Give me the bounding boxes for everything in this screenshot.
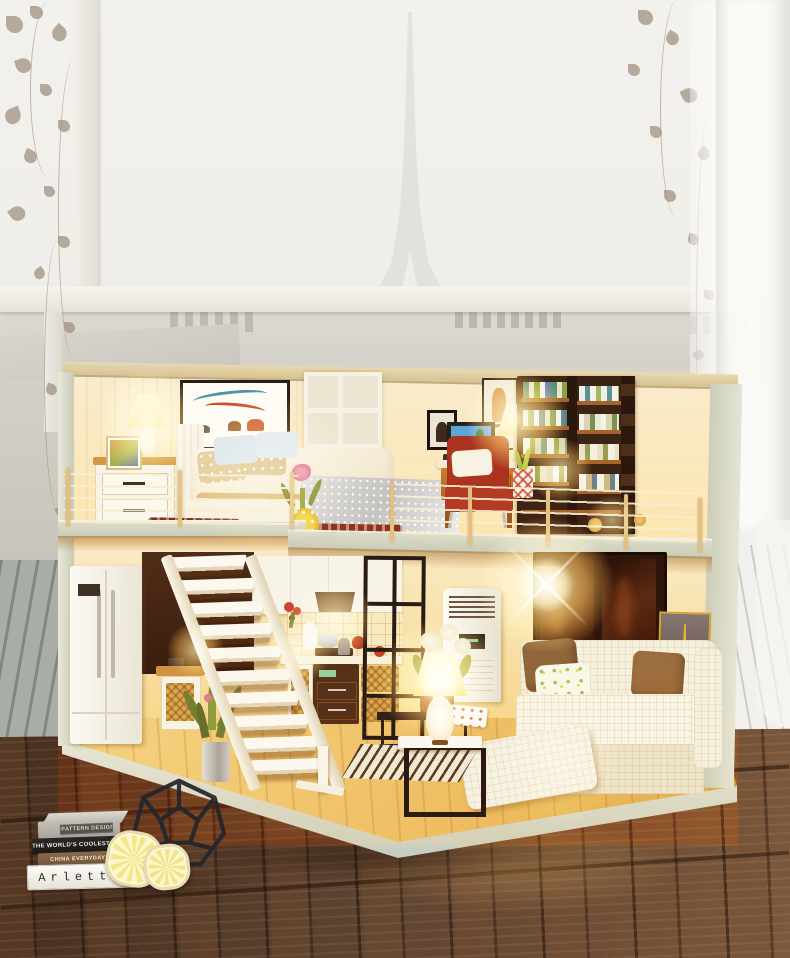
- railing-post: [290, 472, 294, 530]
- railing-post: [178, 470, 182, 527]
- fridge-bottom-seam: [72, 712, 140, 714]
- pillow-blue: [256, 431, 299, 458]
- book-row: [579, 386, 619, 401]
- partition-rail: [367, 602, 421, 606]
- drawer-handle: [328, 709, 346, 711]
- vase-leaf: [306, 478, 323, 506]
- sheer-curtain-strip: [756, 520, 790, 730]
- railing-post: [698, 498, 702, 552]
- vine-leaf: [64, 322, 75, 333]
- vine-leaf: [650, 126, 662, 138]
- shelf-bar: [577, 401, 621, 405]
- living-room-lamp: [406, 652, 474, 748]
- lamp-foot: [432, 740, 448, 745]
- shelf-bar: [521, 426, 569, 430]
- book-row: [523, 410, 567, 426]
- vine-leaf: [628, 64, 640, 76]
- cooking-pot: [318, 634, 338, 648]
- plant-pink-tip: [204, 694, 212, 702]
- glass-reflection: [616, 577, 632, 637]
- vine-leaf: [58, 120, 70, 132]
- vine-leaf: [664, 190, 676, 202]
- sofa-pillow-brown: [630, 650, 685, 700]
- railing-post: [546, 490, 550, 548]
- drawer-handle: [328, 689, 346, 691]
- stair-step: [246, 758, 328, 781]
- fridge: [70, 566, 142, 744]
- vine-leaf: [32, 266, 47, 281]
- book-row: [523, 382, 567, 398]
- shelf-bar: [521, 398, 569, 402]
- glass-reflection: [548, 583, 566, 635]
- artwork-red-line: [205, 400, 266, 417]
- fridge-handle: [97, 590, 101, 678]
- vine-leaf: [7, 203, 28, 224]
- fridge-handle: [111, 590, 115, 678]
- railing-post: [468, 486, 472, 546]
- book-row: [579, 474, 619, 490]
- book-title-label: PATTERN DESIGN: [60, 823, 113, 835]
- vine-leaf: [40, 84, 52, 96]
- vine-leaf: [6, 16, 23, 33]
- railing-post: [624, 494, 628, 550]
- shelf-bar: [577, 460, 621, 464]
- product-photo-dollhouse: PATTERN DESIGN THE WORLD'S COOLEST HOTEL…: [0, 0, 790, 958]
- oven-drawer: [317, 702, 357, 720]
- book-row: [579, 414, 619, 430]
- vine-leaf: [638, 10, 653, 25]
- oven-display: [319, 670, 336, 677]
- range-hood: [315, 592, 355, 612]
- oven-cabinet: [313, 664, 359, 724]
- vine-stem: [660, 0, 695, 220]
- lamp-shade: [122, 394, 172, 428]
- fridge-logo-panel: [78, 584, 100, 596]
- loft-floor-shadow: [58, 536, 306, 552]
- vine-leaf: [3, 106, 24, 127]
- book-row: [579, 444, 619, 460]
- glass-roof-left: [0, 560, 62, 745]
- island-item: [168, 658, 184, 666]
- island-top: [156, 666, 204, 676]
- red-flowers: [284, 602, 294, 612]
- side-table-frame: [404, 748, 486, 817]
- stand-mixer: [338, 638, 350, 655]
- shelf-bar: [577, 430, 621, 434]
- plant-pot-metal: [202, 742, 230, 782]
- hydrangea-bloom: [440, 624, 458, 641]
- pillow-blue: [213, 434, 259, 465]
- door-mullion-horizontal: [308, 408, 378, 413]
- sofa-armrest: [694, 648, 722, 768]
- lamp-shade: [408, 652, 472, 696]
- ac-vent-grill: [449, 596, 495, 620]
- railing-post: [66, 468, 70, 526]
- fridge-divider: [105, 570, 107, 740]
- ceiling-light-fixture: [534, 566, 560, 578]
- white-jug: [303, 622, 317, 650]
- vine-leaf: [44, 186, 55, 197]
- railing-post: [390, 482, 394, 542]
- stair-step: [237, 736, 319, 759]
- vine-leaf: [30, 6, 43, 19]
- oven-drawer: [317, 682, 357, 700]
- lamp-body: [139, 430, 155, 454]
- armchair-cushion: [451, 449, 493, 478]
- nightstand-lamp: [122, 394, 172, 460]
- lamp-ceramic-base: [426, 696, 454, 742]
- vine-leaf: [58, 236, 70, 248]
